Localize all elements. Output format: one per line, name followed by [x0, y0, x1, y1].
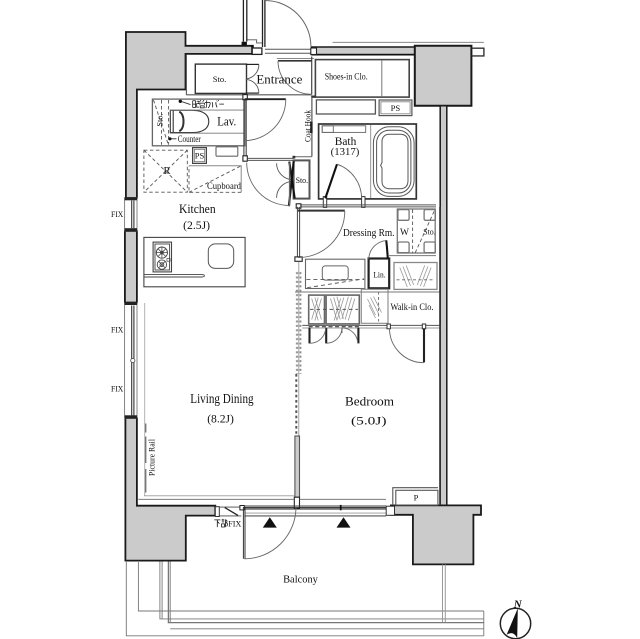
- svg-text:FIX: FIX: [111, 385, 124, 394]
- svg-text:PS: PS: [391, 103, 401, 113]
- svg-text:Coat Hook: Coat Hook: [302, 109, 312, 142]
- svg-text:Lav.: Lav.: [217, 114, 236, 129]
- svg-text:Sto.: Sto.: [213, 74, 227, 84]
- svg-text:(1317): (1317): [331, 147, 360, 158]
- svg-text:Picture Rail: Picture Rail: [146, 438, 156, 476]
- svg-text:Counter: Counter: [178, 135, 202, 145]
- svg-text:Sto.: Sto.: [156, 114, 165, 127]
- svg-text:Entrance: Entrance: [256, 71, 302, 86]
- svg-text:R: R: [164, 166, 171, 177]
- svg-text:P: P: [414, 493, 419, 503]
- svg-text:FIX: FIX: [111, 326, 124, 335]
- svg-text:FIX: FIX: [111, 210, 124, 219]
- svg-text:Walk-in Clo.: Walk-in Clo.: [391, 303, 434, 313]
- svg-text:(5.0J): (5.0J): [351, 414, 387, 428]
- svg-text:Lin.: Lin.: [373, 269, 385, 279]
- svg-text:Balcony: Balcony: [283, 574, 318, 586]
- svg-text:Cupboard: Cupboard: [207, 181, 241, 191]
- svg-text:(8.2J): (8.2J): [207, 412, 234, 426]
- svg-text:Bedroom: Bedroom: [345, 394, 394, 409]
- svg-text:Sto.: Sto.: [423, 227, 436, 237]
- svg-text:Sto.: Sto.: [296, 176, 309, 185]
- svg-text:W: W: [400, 228, 409, 238]
- svg-text:Shoes-in Clo.: Shoes-in Clo.: [325, 73, 368, 83]
- svg-text:Dressing Rm.: Dressing Rm.: [343, 227, 395, 239]
- svg-text:FIX: FIX: [228, 518, 241, 528]
- svg-text:PS: PS: [195, 151, 205, 160]
- svg-text:Kitchen: Kitchen: [179, 201, 216, 216]
- svg-text:N: N: [513, 599, 523, 611]
- svg-text:(2.5J): (2.5J): [183, 220, 210, 232]
- svg-text:Living Dining: Living Dining: [190, 391, 254, 406]
